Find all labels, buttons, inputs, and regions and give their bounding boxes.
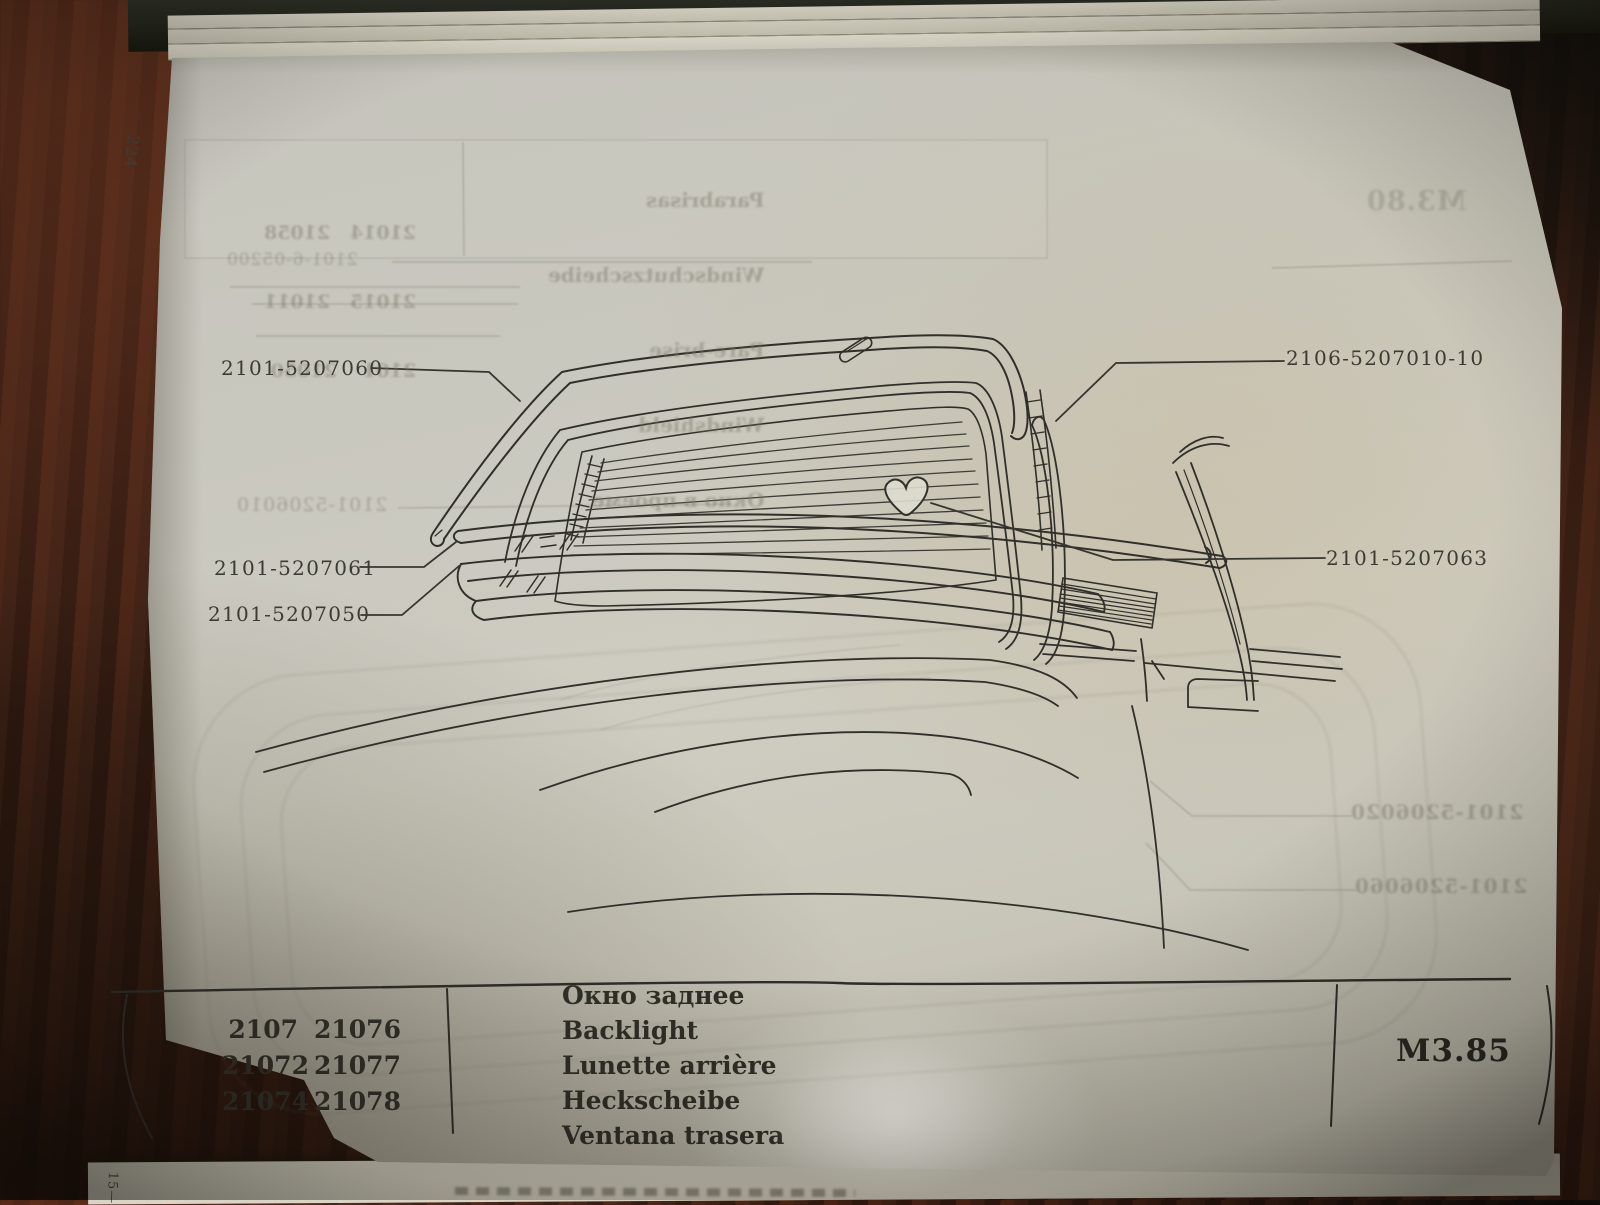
show-through-part-names: Parabrisas Windschutzscheibe Pare-brise …	[548, 138, 764, 563]
part-label-molding-frame: 2101-5207050	[208, 602, 370, 626]
part-name-spanish: Ventana trasera	[562, 1118, 784, 1153]
part-label-molding-top: 2101-5207060	[221, 356, 383, 380]
part-label-seal: 2106-5207010-10	[1286, 346, 1484, 370]
show-through-part-label: 2101-5206060	[1354, 874, 1527, 898]
show-through-model-numbers: 21014 21058 21015 21011 2101 21050	[264, 176, 416, 429]
footer-part-names: Окно заднее Backlight Lunette arrière He…	[562, 978, 784, 1153]
part-name-german: Heckscheibe	[562, 1083, 784, 1118]
show-through-part-label: 2101-5206010	[236, 494, 387, 516]
car-body-lines	[256, 437, 1342, 950]
model-number-row: 210721076	[222, 1012, 401, 1048]
show-through-part-label: 2101-5206020	[1350, 800, 1523, 824]
clip-part	[885, 477, 927, 515]
part-name-english: Backlight	[562, 1013, 784, 1048]
footer-model-numbers: 210721076 2107221077 2107421078	[222, 1012, 401, 1120]
part-label-molding-lower: 2101-5207061	[214, 556, 376, 580]
model-number-row: 2107421078	[222, 1084, 401, 1120]
show-through-section-code: M3.80	[1366, 186, 1467, 217]
part-name-french: Lunette arrière	[562, 1048, 784, 1083]
show-through-part-label: 2101-6-05200	[226, 250, 358, 270]
camera-flash-flare	[765, 1038, 1025, 1198]
part-label-clip: 2101-5207063	[1326, 546, 1488, 570]
section-code: M3.85	[1396, 1033, 1506, 1069]
page-number: 224	[121, 134, 143, 169]
part-name-russian: Окно заднее	[562, 978, 784, 1013]
model-number-row: 2107221077	[222, 1048, 401, 1084]
